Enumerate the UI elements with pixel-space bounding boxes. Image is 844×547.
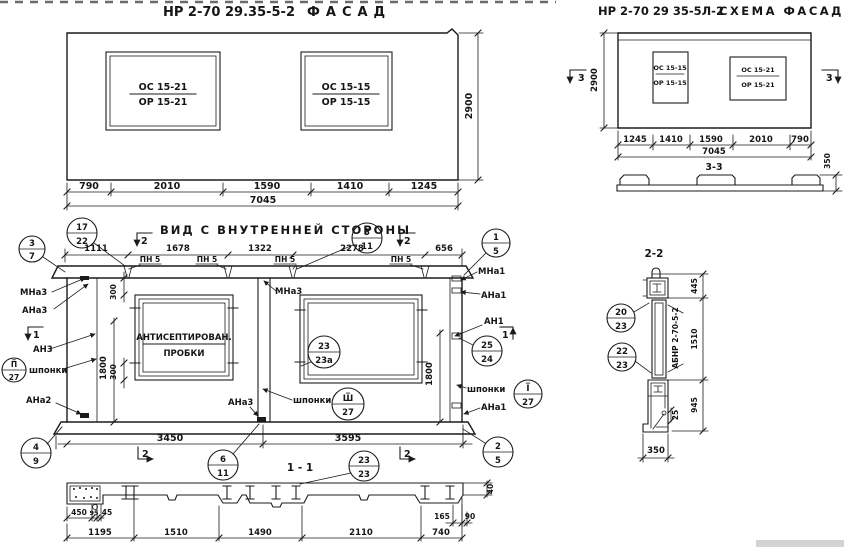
leader — [56, 403, 81, 414]
leader — [43, 257, 65, 272]
schema-dim-row-total: 7045 — [615, 147, 814, 160]
label-ana1b: АНа1 — [481, 403, 506, 413]
facade-dim-1590: 1590 — [254, 181, 281, 192]
node-circle-II-27: П̅ 27 — [2, 358, 26, 382]
facade-window-2-mark-top: ОС 15-15 — [322, 82, 371, 93]
dim-40: 40 — [486, 484, 495, 494]
node-bottom: 23 — [615, 322, 627, 332]
label-mna3-mid: МНа3 — [275, 287, 302, 297]
dim-740: 740 — [432, 528, 450, 538]
node-top: 23 — [318, 342, 330, 352]
node-top: 6 — [220, 455, 226, 465]
dim-300-bottom: 300 — [109, 364, 118, 380]
label-shponki-right: шпонки — [467, 385, 505, 395]
inner-view-drawing: ВИД С ВНУТРЕННЕЙ СТОРОНЫ 1111 1678 1322 … — [2, 218, 542, 480]
facade-dim-2010: 2010 — [154, 181, 181, 192]
leader — [250, 407, 258, 416]
facade-dim-row-total: 7045 — [64, 195, 461, 209]
node-circle-17-22: 17 22 — [67, 218, 125, 266]
leader — [461, 272, 477, 280]
node-top: 5 — [364, 228, 370, 238]
rebar-dots — [73, 487, 98, 499]
node-circle-III-27: Ш̅ 27 — [332, 388, 364, 420]
schema-dim-1590: 1590 — [699, 135, 723, 145]
facade-window-1: ОС 15-21 ОР 15-21 — [106, 52, 220, 130]
schema-height-dim: 2900 — [590, 30, 618, 131]
inner-right-labels: МНа1 АНа1 АН1 25 24 1 шпонки — [455, 267, 542, 414]
profile-blocks — [620, 175, 820, 185]
schema-window-1-mark-bottom: ОР 15-15 — [653, 79, 687, 87]
top-block — [643, 278, 668, 298]
leader — [50, 334, 95, 349]
label-mna1: МНа1 — [478, 267, 505, 277]
dim-450: 450 — [71, 508, 87, 517]
leader — [635, 361, 651, 373]
schema-section-marker-3-right: 3 — [822, 70, 838, 84]
section1-small-dims: 450 95 45 — [64, 505, 112, 521]
facade-title-name: ФАСАД — [307, 5, 391, 20]
section-marker-label: 3 — [826, 73, 833, 84]
leader — [63, 359, 96, 369]
leader — [459, 338, 473, 345]
node-circle-6-11: 6 11 — [208, 424, 259, 480]
inner-dim-3595: 3595 — [335, 433, 361, 444]
dim-25: 25 — [671, 410, 680, 420]
schema-dim-1410: 1410 — [659, 135, 683, 145]
dim-445: 445 — [690, 278, 699, 294]
inner-dim-1322: 1322 — [248, 244, 272, 254]
node-bottom: 11 — [217, 469, 229, 479]
schema-drawing: НР 2-70 29 35-5Л-2 СХЕМА ФАСАДА ОС 15-15… — [570, 4, 844, 194]
node-top: 4 — [33, 443, 39, 453]
rebar-symbol — [654, 386, 662, 392]
schema-section-marker-3-left: 3 — [570, 70, 586, 84]
schema-dim-2010: 2010 — [749, 135, 773, 145]
inner-dim-3450: 3450 — [157, 433, 184, 444]
dim-90: 90 — [465, 512, 475, 521]
node-top: 22 — [616, 347, 628, 357]
schema-title-name: СХЕМА ФАСАДА — [719, 4, 844, 18]
leader — [54, 284, 88, 309]
section-2-2-label: 2-2 — [645, 248, 664, 260]
rebar-symbol — [643, 280, 661, 296]
dim-1800-left: 1800 — [99, 356, 109, 380]
section1-main-dims: 1195 1510 1490 2110 740 — [64, 498, 465, 541]
facade-window-2: ОС 15-15 ОР 15-15 — [301, 52, 392, 130]
bottom-base — [54, 422, 475, 434]
dim-945: 945 — [690, 397, 699, 413]
node-circle-22-23: 22 23 — [608, 343, 651, 373]
node-top: 1 — [493, 233, 499, 243]
label-shponki-left: шпонки — [29, 366, 67, 376]
node-bottom: 7 — [29, 252, 35, 262]
leader — [263, 389, 292, 400]
dim-2110: 2110 — [349, 528, 373, 538]
frame-ticks — [295, 310, 427, 362]
inner-window-1: АНТИСЕПТИРОВАН. ПРОБКИ — [130, 295, 238, 380]
facade-dim-1245: 1245 — [411, 181, 437, 192]
section-marker-label: 1 — [502, 330, 509, 341]
node-top: 3 — [29, 239, 35, 249]
witness-lines — [56, 425, 463, 449]
leader — [455, 325, 482, 336]
pn5-label-3: ПН 5 — [275, 255, 295, 264]
node-bottom: 27 — [522, 398, 534, 408]
panel-drawing-svg: НР 2-70 29.35-5-2 ФАСАД ОС 15-21 ОР 15-2… — [0, 0, 844, 547]
pn5-label-2: ПН 5 — [197, 255, 217, 264]
section-3-3-label: 3-3 — [705, 162, 722, 173]
schema-window-2-mark-bottom: ОР 15-21 — [741, 81, 775, 89]
schema-window-2-mark-top: ОС 15-21 — [741, 66, 775, 74]
section-marker-label: 2 — [404, 449, 411, 460]
pn5-labels: ПН 5 ПН 5 ПН 5 ПН 5 — [129, 255, 423, 269]
leader — [47, 427, 62, 444]
dim-1510: 1510 — [164, 528, 188, 538]
dim-1800-right: 1800 — [425, 362, 435, 386]
facade-height-label: 2900 — [464, 92, 475, 119]
schema-window-1: ОС 15-15 ОР 15-15 — [653, 52, 688, 103]
section-1-marker-right: 1 — [500, 327, 513, 341]
label-shponki-mid: шпонки — [293, 396, 331, 406]
section-1-marker-left: 1 — [28, 327, 43, 341]
profile-base — [617, 185, 823, 191]
section-2-marker-bottom-left: 2 — [138, 447, 153, 460]
panel-mark-vertical: АБНР 2-70-5-2 — [671, 307, 680, 368]
panel-sides — [67, 278, 462, 422]
facade-window-1-mark-top: ОС 15-21 — [139, 82, 188, 93]
dim-300-top: 300 — [109, 284, 118, 300]
node-top: 2 — [495, 442, 501, 452]
node-bottom: 5 — [495, 456, 501, 466]
node-top: Ш̅ — [343, 392, 354, 404]
facade-title-code: НР 2-70 29.35-5-2 — [163, 5, 295, 20]
inner-dim-656: 656 — [435, 244, 453, 254]
inner-middle-labels: МНа3 АНа3 шпонки Ш̅ 27 23 23а — [228, 281, 364, 420]
section2-dim-25: 25 — [668, 407, 680, 424]
profile-height-label: 350 — [823, 153, 832, 169]
anchor-detail — [653, 414, 667, 429]
label-an1: АН1 — [484, 317, 504, 327]
leader — [634, 303, 649, 312]
schema-dim-1245: 1245 — [623, 135, 647, 145]
scan-artifact-bottom-smudge — [756, 540, 844, 547]
blueprint-page: НР 2-70 29.35-5-2 ФАСАД ОС 15-21 ОР 15-2… — [0, 0, 844, 547]
facade-dim-1410: 1410 — [337, 181, 364, 192]
section2-dim-350: 350 — [638, 434, 674, 462]
node-circle-20-23: 20 23 — [607, 303, 649, 332]
node-bottom: 27 — [342, 408, 354, 418]
label-ana3-left: АНа3 — [22, 306, 47, 316]
node-bottom: 24 — [481, 355, 493, 365]
schema-window-2: ОС 15-21 ОР 15-21 — [730, 57, 786, 100]
schema-panel-outline — [618, 33, 811, 128]
node-circle-I-27: I̅ 27 — [514, 380, 542, 408]
node-circle-23-23a: 23 23а — [301, 336, 340, 368]
dim-1510: 1510 — [690, 329, 699, 350]
facade-dim-total: 7045 — [250, 195, 276, 206]
node-circle-25-24: 25 24 — [459, 336, 502, 366]
node-bottom: 22 — [76, 237, 88, 247]
window-note-line2: ПРОБКИ — [163, 349, 204, 359]
bottom-block — [643, 380, 668, 432]
node-top: П̅ — [11, 360, 17, 369]
schema-window-1-mark-top: ОС 15-15 — [653, 64, 687, 72]
leader — [94, 243, 125, 266]
schema-dim-total: 7045 — [702, 147, 726, 157]
label-ana3-mid: АНа3 — [228, 398, 253, 408]
node-top: I̅ — [525, 382, 530, 394]
section2-right-dims: 445 1510 945 — [652, 271, 708, 434]
section-2-2-drawing: 2-2 АБНР 2-70-5-2 20 23 — [607, 248, 708, 462]
leader — [301, 362, 311, 366]
facade-window-1-mark-bottom: ОР 15-21 — [139, 97, 188, 108]
dim-350: 350 — [647, 446, 665, 456]
facade-height-dim: 2900 — [459, 30, 483, 183]
dim-45: 45 — [102, 508, 112, 517]
label-ana1: АНа1 — [481, 291, 506, 301]
leader — [300, 473, 351, 484]
schema-title-code: НР 2-70 29 35-5Л-2 — [598, 4, 724, 18]
leader — [464, 408, 480, 414]
facade-drawing: НР 2-70 29.35-5-2 ФАСАД ОС 15-21 ОР 15-2… — [64, 5, 483, 210]
node-top: 25 — [481, 341, 493, 351]
label-an3: АН3 — [33, 345, 53, 355]
facade-dim-790: 790 — [79, 181, 99, 192]
section-1-1-drawing: 1 - 1 23 23 450 95 45 — [64, 451, 495, 541]
section-marker-label: 1 — [33, 330, 40, 341]
top-flange — [52, 266, 473, 278]
lifting-loop — [652, 268, 660, 278]
pn5-label-1: ПН 5 — [140, 255, 160, 264]
dim-1195: 1195 — [88, 528, 112, 538]
section-marker-label: 2 — [404, 236, 411, 247]
rebar-cage-symbols — [122, 486, 454, 499]
witness-lines — [600, 33, 618, 128]
section-2-marker-bottom-right: 2 — [400, 447, 415, 460]
node-bottom: 11 — [361, 242, 373, 252]
label-ana2: АНа2 — [26, 396, 51, 406]
window-note-line1: АНТИСЕПТИРОВАН. — [136, 333, 232, 343]
schema-dim-790: 790 — [791, 135, 809, 145]
leader — [461, 292, 480, 294]
node-bottom: 23 — [616, 361, 628, 371]
node-bottom: 27 — [9, 373, 19, 382]
section-2-marker-top-left: 2 — [137, 233, 152, 247]
dim-165: 165 — [434, 512, 450, 521]
schema-height-label: 2900 — [590, 68, 600, 92]
facade-window-2-mark-bottom: ОР 15-15 — [322, 97, 371, 108]
pn5-label-4: ПН 5 — [391, 255, 411, 264]
node-bottom: 9 — [33, 457, 39, 467]
flange-notches — [124, 266, 429, 277]
node-top: 17 — [76, 223, 88, 233]
inner-bottom-dims: 3450 3595 — [56, 425, 472, 449]
dim-1490: 1490 — [248, 528, 272, 538]
section-marker-label: 3 — [578, 73, 585, 84]
node-bottom: 23а — [315, 356, 333, 366]
leader — [233, 424, 259, 454]
node-bottom: 5 — [493, 247, 499, 257]
section-marker-label: 2 — [142, 449, 149, 460]
dim-95: 95 — [89, 509, 99, 517]
node-bottom: 23 — [358, 470, 370, 480]
label-mna3-left: МНа3 — [20, 288, 47, 298]
section-1-1-label: 1 - 1 — [287, 462, 313, 474]
section-marker-label: 2 — [141, 236, 148, 247]
node-top: 20 — [615, 308, 627, 318]
node-top: 23 — [358, 456, 370, 466]
inner-dim-1678: 1678 — [166, 244, 190, 254]
panel-inner-lines — [97, 278, 450, 422]
inner-left-labels: МНа3 АНа3 1 АН3 П̅ 27 шпонки АНа2 — [2, 278, 96, 414]
mullion-lines — [258, 278, 270, 422]
